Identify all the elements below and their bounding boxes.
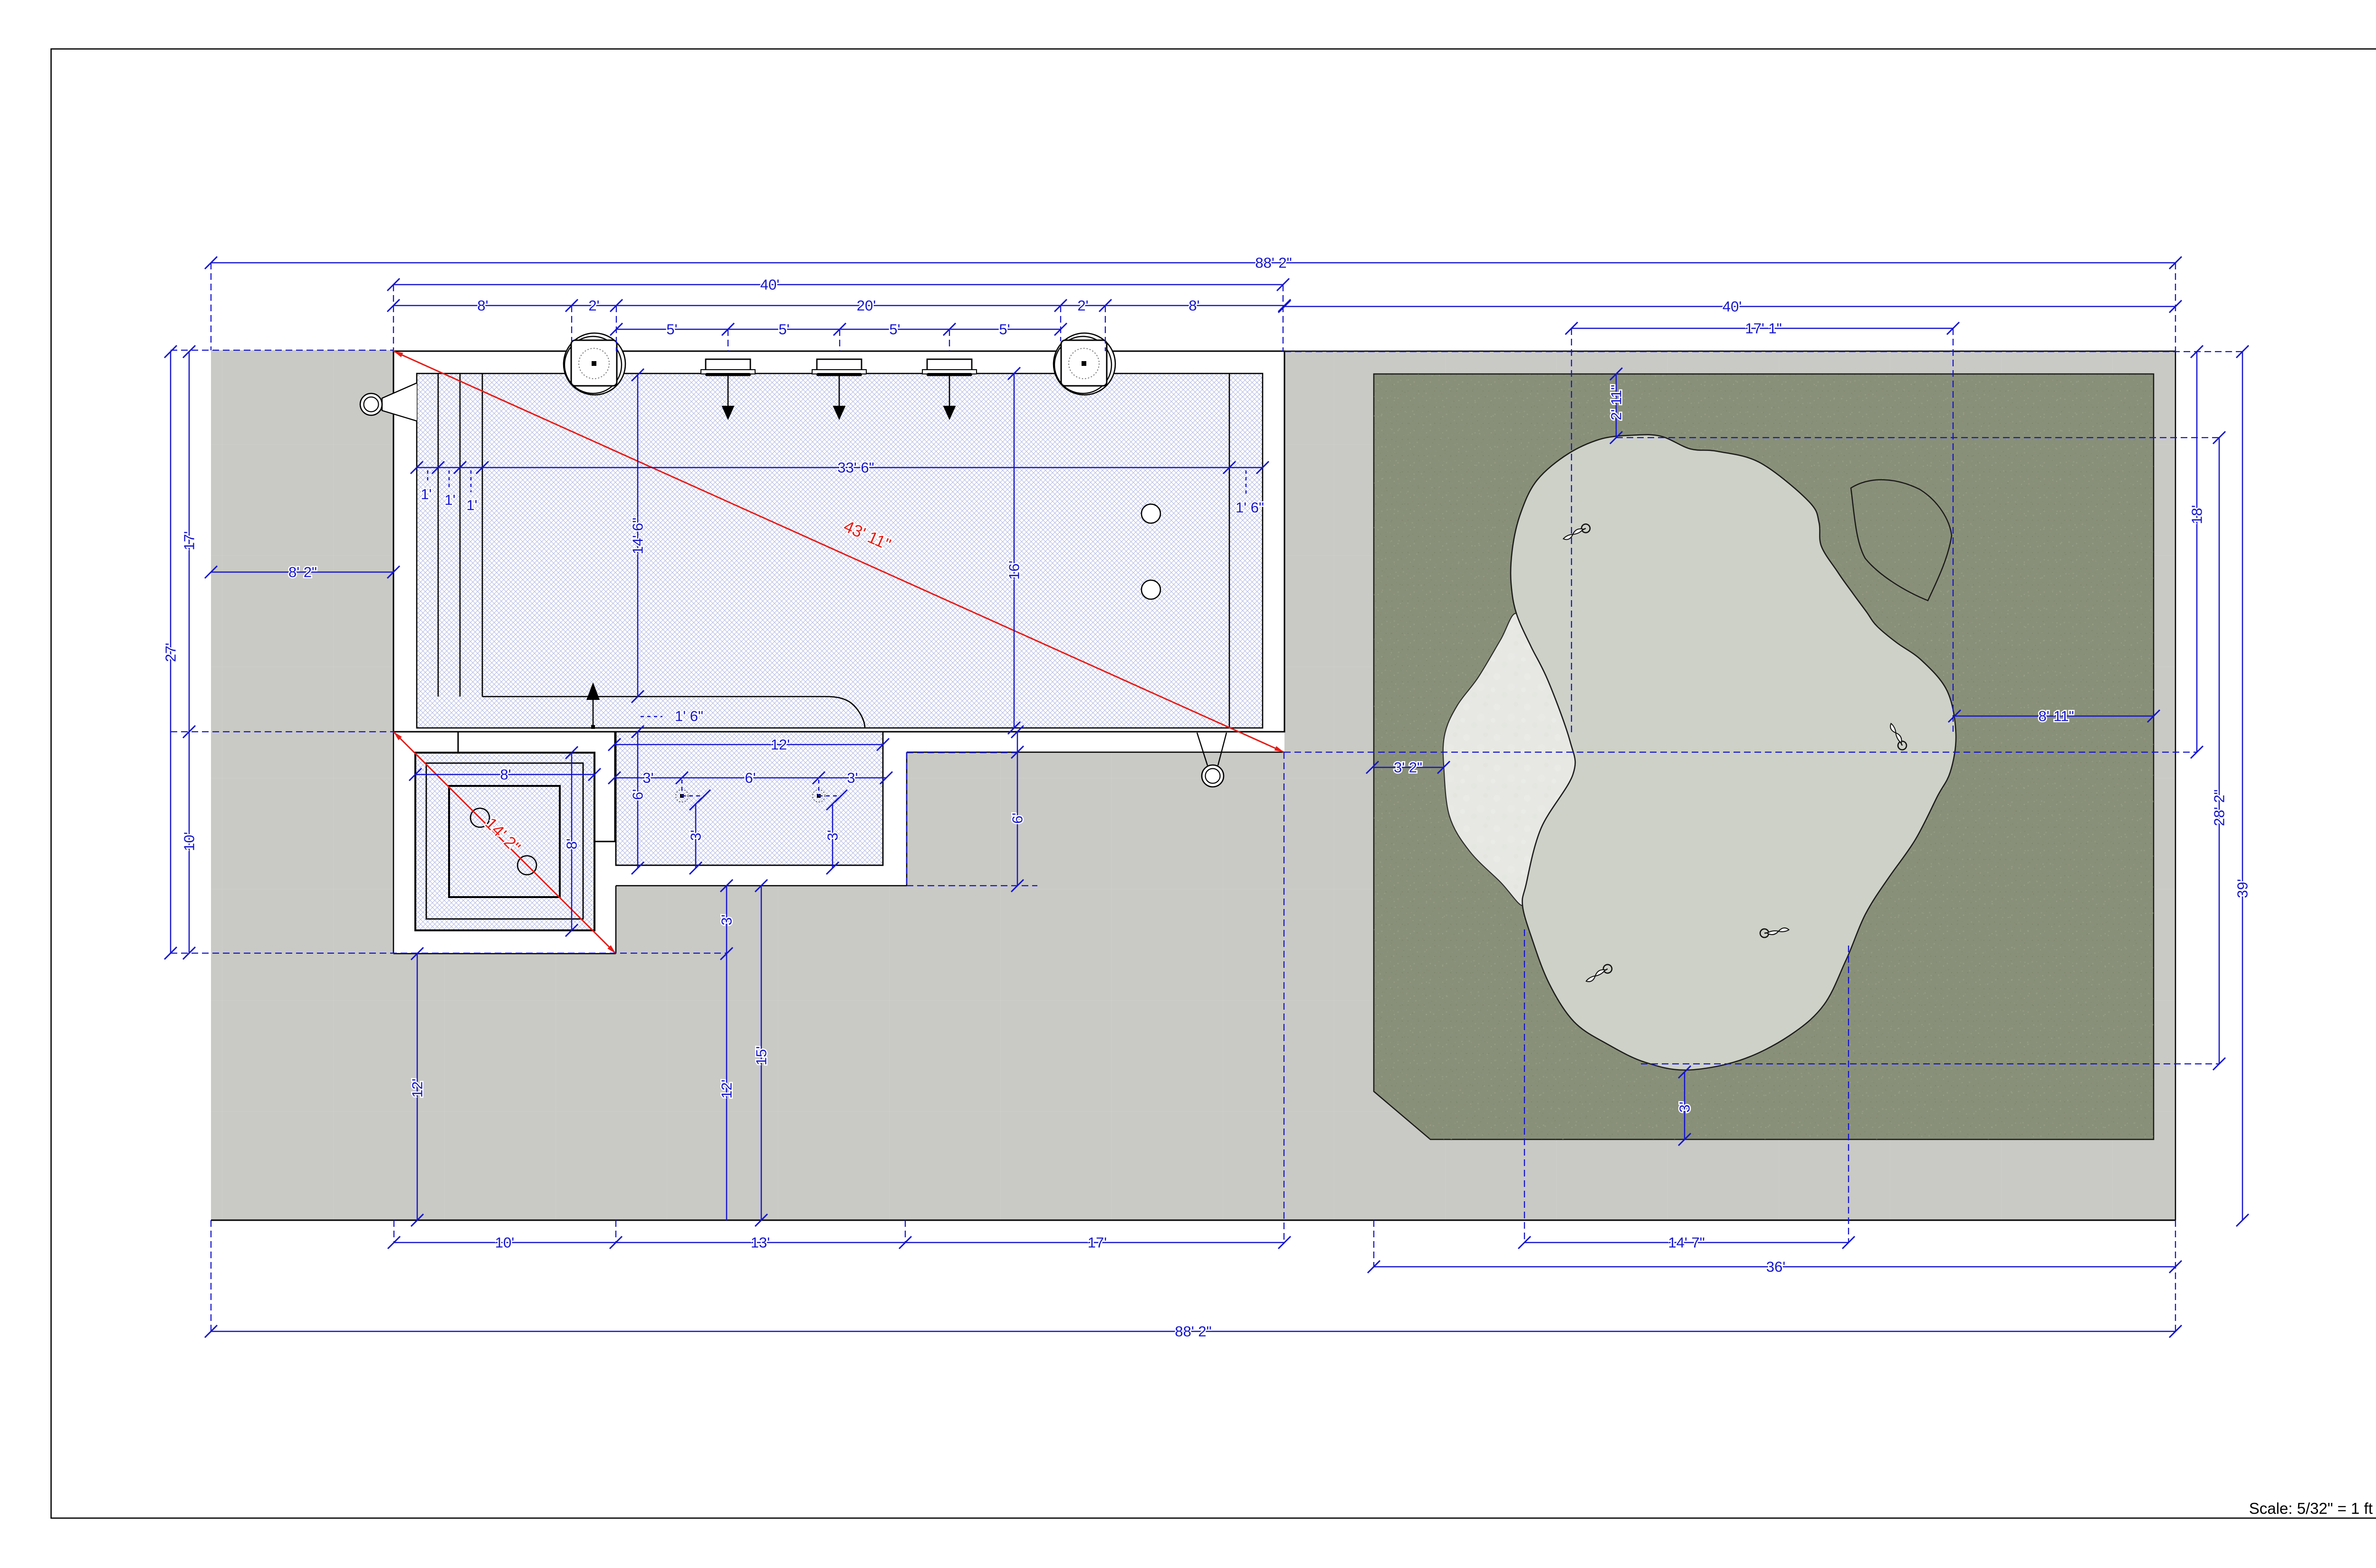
svg-text:3': 3' bbox=[847, 770, 858, 786]
svg-text:17': 17' bbox=[181, 531, 198, 550]
svg-text:2' 11": 2' 11" bbox=[1608, 385, 1625, 421]
svg-text:88' 2": 88' 2" bbox=[1175, 1323, 1211, 1340]
svg-text:10': 10' bbox=[181, 832, 198, 851]
svg-text:17' 1": 17' 1" bbox=[1745, 320, 1782, 337]
svg-text:16': 16' bbox=[1006, 561, 1023, 580]
svg-text:6': 6' bbox=[1009, 813, 1026, 823]
svg-text:6': 6' bbox=[745, 770, 756, 786]
svg-text:1': 1' bbox=[444, 492, 455, 508]
svg-text:8': 8' bbox=[477, 297, 488, 314]
svg-text:20': 20' bbox=[857, 297, 876, 314]
svg-text:18': 18' bbox=[2189, 505, 2205, 524]
svg-text:12': 12' bbox=[409, 1079, 426, 1098]
svg-text:27': 27' bbox=[163, 643, 179, 662]
svg-text:88' 2": 88' 2" bbox=[1255, 255, 1292, 271]
svg-text:6': 6' bbox=[630, 789, 646, 800]
svg-text:5': 5' bbox=[999, 321, 1010, 338]
svg-text:8': 8' bbox=[500, 766, 511, 783]
svg-text:40': 40' bbox=[760, 277, 779, 293]
svg-text:5': 5' bbox=[666, 321, 677, 338]
svg-text:3': 3' bbox=[719, 914, 735, 925]
svg-text:1': 1' bbox=[466, 497, 477, 514]
svg-text:14' 7": 14' 7" bbox=[1668, 1234, 1705, 1251]
svg-text:28' 2": 28' 2" bbox=[2211, 789, 2228, 826]
svg-text:10': 10' bbox=[495, 1234, 514, 1251]
svg-text:1' 6": 1' 6" bbox=[675, 708, 703, 725]
svg-text:5': 5' bbox=[889, 321, 900, 338]
svg-text:40': 40' bbox=[1723, 298, 1742, 315]
svg-text:3' 2": 3' 2" bbox=[1394, 759, 1422, 776]
svg-text:5': 5' bbox=[778, 321, 789, 338]
svg-text:12': 12' bbox=[771, 736, 790, 753]
svg-text:3': 3' bbox=[824, 830, 841, 841]
svg-text:13': 13' bbox=[751, 1234, 770, 1251]
svg-text:2': 2' bbox=[1077, 297, 1088, 314]
svg-text:Scale: 5/32" = 1 ft: Scale: 5/32" = 1 ft bbox=[2249, 1500, 2373, 1517]
svg-text:36': 36' bbox=[1766, 1259, 1785, 1275]
svg-text:1': 1' bbox=[421, 486, 431, 503]
svg-text:3': 3' bbox=[688, 830, 704, 841]
svg-text:12': 12' bbox=[719, 1080, 735, 1099]
svg-text:2': 2' bbox=[588, 297, 599, 314]
svg-text:14' 6": 14' 6" bbox=[630, 517, 646, 554]
svg-text:17': 17' bbox=[1088, 1234, 1107, 1251]
svg-text:15': 15' bbox=[753, 1046, 770, 1065]
svg-text:8' 2": 8' 2" bbox=[288, 564, 317, 581]
svg-text:8' 11": 8' 11" bbox=[2039, 708, 2074, 725]
svg-text:39': 39' bbox=[2234, 879, 2251, 898]
svg-text:3': 3' bbox=[1677, 1101, 1693, 1112]
svg-text:8': 8' bbox=[564, 838, 580, 849]
svg-text:1' 6": 1' 6" bbox=[1236, 499, 1264, 516]
svg-text:3': 3' bbox=[642, 770, 653, 786]
svg-text:33' 6": 33' 6" bbox=[837, 459, 874, 476]
svg-text:8': 8' bbox=[1188, 297, 1199, 314]
